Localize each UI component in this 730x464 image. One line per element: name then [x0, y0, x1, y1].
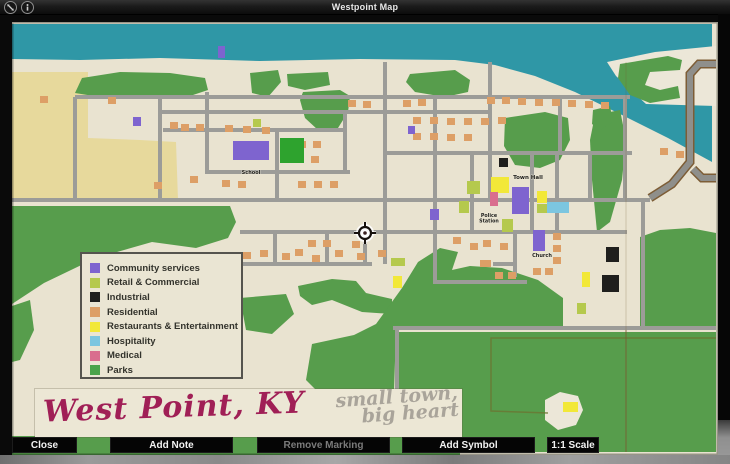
- building-industrial: [606, 247, 619, 262]
- building-industrial: [602, 275, 619, 292]
- legend-swatch: [90, 322, 100, 332]
- building-restaurants: [537, 191, 547, 203]
- legend-swatch: [90, 278, 100, 288]
- map-label-town-hall: Town Hall: [513, 175, 543, 181]
- legend-label: Residential: [107, 307, 158, 318]
- building-residential: [447, 134, 455, 141]
- building-retail: [459, 201, 469, 213]
- building-residential: [508, 272, 516, 279]
- legend-label: Community services: [107, 263, 200, 274]
- add-symbol-button[interactable]: Add Symbol: [402, 437, 535, 453]
- building-retail: [253, 119, 261, 127]
- building-industrial: [499, 158, 508, 167]
- banner-title: West Point, KY: [42, 385, 305, 429]
- building-community: [430, 209, 439, 220]
- legend-swatch: [90, 351, 100, 361]
- building-residential: [154, 182, 162, 189]
- building-residential: [483, 260, 491, 267]
- building-medical: [490, 192, 498, 206]
- building-residential: [601, 102, 609, 109]
- window-title: Westpoint Map: [0, 2, 730, 12]
- building-residential: [330, 181, 338, 188]
- building-restaurants: [563, 402, 578, 412]
- legend-swatch: [90, 365, 100, 375]
- building-community: [408, 126, 415, 134]
- legend-item: Residential: [90, 305, 241, 320]
- building-residential: [495, 272, 503, 279]
- building-residential: [260, 250, 268, 257]
- legend-item: Retail & Commercial: [90, 276, 241, 291]
- building-residential: [222, 180, 230, 187]
- legend-item: Parks: [90, 363, 241, 378]
- building-residential: [357, 253, 365, 260]
- building-residential: [323, 240, 331, 247]
- scale-button[interactable]: 1:1 Scale: [547, 437, 599, 453]
- map-label-police-station: Police: [481, 213, 498, 219]
- building-residential: [225, 125, 233, 132]
- building-residential: [464, 118, 472, 125]
- legend-swatch: [90, 292, 100, 302]
- building-residential: [295, 249, 303, 256]
- building-residential: [413, 133, 421, 140]
- building-residential: [311, 156, 319, 163]
- building-residential: [430, 133, 438, 140]
- building-residential: [487, 97, 495, 104]
- building-restaurants: [491, 177, 509, 193]
- park-area: [12, 436, 460, 455]
- building-residential: [243, 126, 251, 133]
- legend-item: Industrial: [90, 290, 241, 305]
- building-community: [133, 117, 141, 126]
- building-residential: [498, 117, 506, 124]
- building-residential: [196, 124, 204, 131]
- building-residential: [352, 241, 360, 248]
- building-retail: [391, 258, 405, 266]
- building-residential: [660, 148, 668, 155]
- legend-label: Restaurants & Entertainment: [107, 321, 238, 332]
- park-area: [640, 228, 716, 328]
- building-retail: [577, 303, 586, 314]
- building-residential: [553, 233, 561, 240]
- window-titlebar[interactable]: Westpoint Map: [0, 0, 730, 15]
- building-retail: [467, 181, 480, 194]
- building-residential: [170, 122, 178, 129]
- building-residential: [500, 243, 508, 250]
- building-residential: [348, 100, 356, 107]
- legend-label: Medical: [107, 350, 142, 361]
- building-restaurants: [393, 276, 402, 288]
- building-residential: [464, 134, 472, 141]
- building-residential: [40, 96, 48, 103]
- game-world-strip: [0, 455, 730, 464]
- building-residential: [262, 127, 270, 134]
- legend-swatch: [90, 263, 100, 273]
- legend-item: Hospitality: [90, 334, 241, 349]
- building-residential: [545, 268, 553, 275]
- building-residential: [181, 124, 189, 131]
- building-hospitality: [547, 202, 569, 213]
- building-community: [512, 187, 529, 214]
- building-residential: [335, 250, 343, 257]
- building-residential: [552, 99, 560, 106]
- building-retail: [502, 219, 513, 232]
- building-residential: [403, 100, 411, 107]
- building-residential: [238, 181, 246, 188]
- building-community: [233, 141, 269, 160]
- building-residential: [312, 255, 320, 262]
- building-residential: [568, 100, 576, 107]
- legend-swatch: [90, 307, 100, 317]
- building-community: [533, 230, 545, 251]
- building-residential: [447, 118, 455, 125]
- map-legend: Community servicesRetail & CommercialInd…: [80, 252, 243, 379]
- banner-tagline: small town, big heart: [335, 385, 459, 427]
- add-note-button[interactable]: Add Note: [110, 437, 233, 453]
- window-frame-right: [718, 14, 730, 455]
- building-residential: [470, 243, 478, 250]
- legend-item: Restaurants & Entertainment: [90, 319, 241, 334]
- building-residential: [518, 98, 526, 105]
- building-residential: [502, 97, 510, 104]
- building-residential: [378, 250, 386, 257]
- building-residential: [453, 237, 461, 244]
- legend-label: Hospitality: [107, 336, 156, 347]
- building-residential: [282, 253, 290, 260]
- building-residential: [533, 268, 541, 275]
- building-residential: [313, 141, 321, 148]
- building-residential: [430, 117, 438, 124]
- building-residential: [483, 240, 491, 247]
- building-residential: [553, 245, 561, 252]
- close-button[interactable]: Close: [12, 437, 77, 453]
- building-residential: [413, 117, 421, 124]
- westpoint-map-window: Westpoint Map SchoolTown HallPoliceStati…: [0, 0, 730, 464]
- building-parkfield: [280, 138, 304, 163]
- building-residential: [553, 257, 561, 264]
- legend-item: Medical: [90, 349, 241, 364]
- remove-marking-button[interactable]: Remove Marking: [257, 437, 390, 453]
- building-retail: [537, 204, 547, 213]
- building-residential: [363, 101, 371, 108]
- legend-item: Community services: [90, 261, 241, 276]
- legend-swatch: [90, 336, 100, 346]
- building-community: [218, 46, 225, 58]
- building-residential: [108, 97, 116, 104]
- building-residential: [190, 176, 198, 183]
- legend-label: Retail & Commercial: [107, 277, 199, 288]
- town-banner: West Point, KY small town, big heart: [35, 389, 462, 437]
- building-restaurants: [582, 272, 590, 287]
- building-residential: [535, 99, 543, 106]
- building-residential: [676, 151, 684, 158]
- building-residential: [481, 118, 489, 125]
- legend-label: Industrial: [107, 292, 150, 303]
- legend-label: Parks: [107, 365, 133, 376]
- building-residential: [298, 181, 306, 188]
- player-marker: [363, 231, 367, 235]
- building-residential: [314, 181, 322, 188]
- map-label-police-station: Station: [479, 218, 499, 224]
- map-label-school: School: [242, 170, 261, 176]
- map-label-church: Church: [532, 253, 552, 259]
- building-residential: [308, 240, 316, 247]
- building-residential: [418, 99, 426, 106]
- building-residential: [243, 252, 251, 259]
- building-residential: [585, 101, 593, 108]
